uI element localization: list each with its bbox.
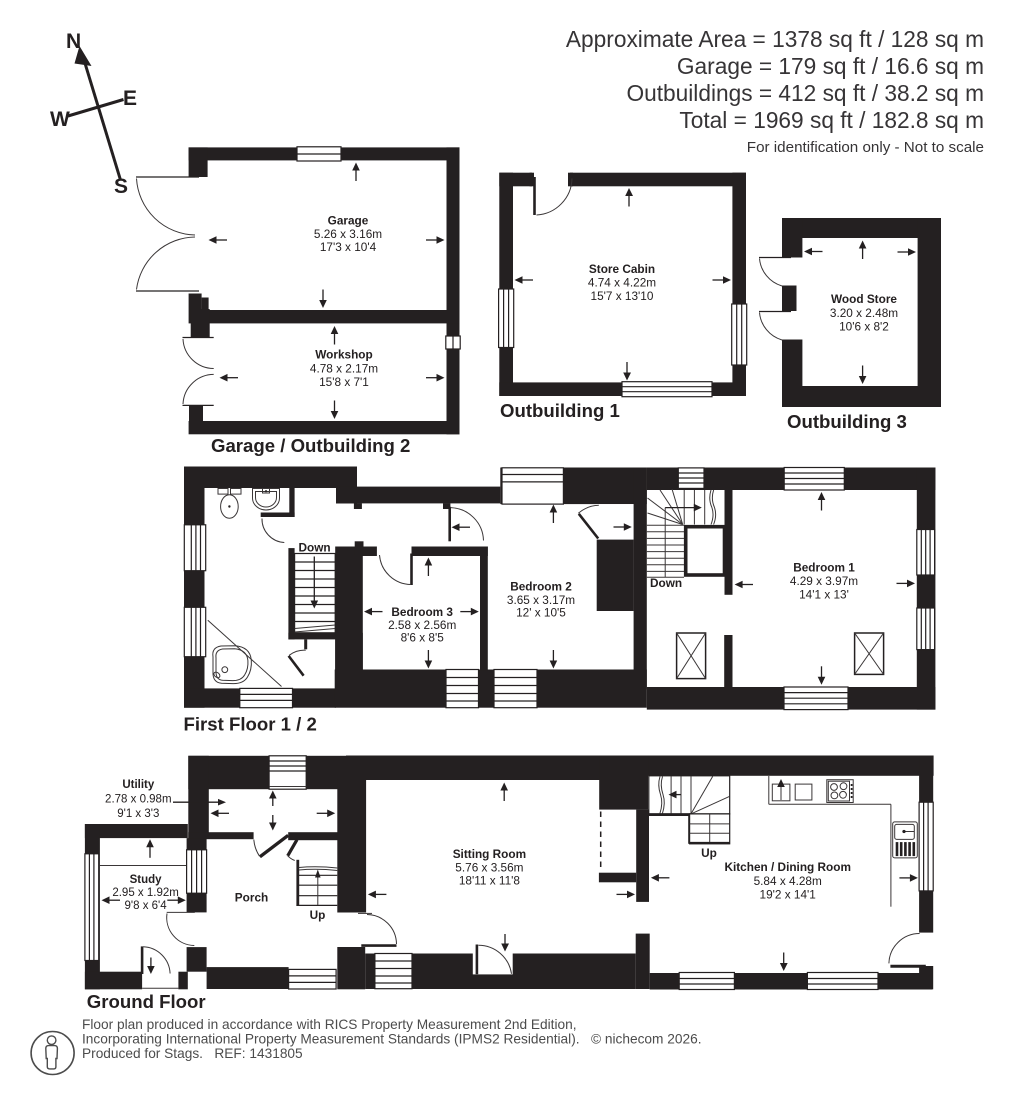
svg-text:Outbuilding 1: Outbuilding 1 xyxy=(500,400,620,421)
svg-text:Up: Up xyxy=(701,846,717,860)
svg-text:Sitting Room: Sitting Room xyxy=(453,847,526,861)
svg-text:4.78 x 2.17m: 4.78 x 2.17m xyxy=(310,362,378,376)
svg-text:2.95 x 1.92m: 2.95 x 1.92m xyxy=(112,887,178,899)
svg-text:Garage = 179 sq ft / 16.6 sq m: Garage = 179 sq ft / 16.6 sq m xyxy=(677,53,984,79)
svg-text:8'6 x 8'5: 8'6 x 8'5 xyxy=(401,631,445,645)
svg-text:3.20 x 2.48m: 3.20 x 2.48m xyxy=(830,306,898,320)
svg-text:W: W xyxy=(50,108,70,131)
svg-text:Outbuildings = 412 sq ft / 38.: Outbuildings = 412 sq ft / 38.2 sq m xyxy=(626,80,984,106)
svg-text:4.74 x 4.22m: 4.74 x 4.22m xyxy=(588,276,656,290)
svg-text:Workshop: Workshop xyxy=(315,348,372,362)
svg-text:Produced for Stags. REF: 143: Produced for Stags. REF: 1431805 xyxy=(82,1046,303,1061)
svg-text:Approximate Area = 1378 sq ft: Approximate Area = 1378 sq ft / 128 sq m xyxy=(566,26,984,52)
svg-text:2.78 x 0.98m: 2.78 x 0.98m xyxy=(105,794,171,806)
svg-text:Porch: Porch xyxy=(235,891,268,905)
svg-text:5.76 x 3.56m: 5.76 x 3.56m xyxy=(455,861,523,875)
svg-text:5.26 x 3.16m: 5.26 x 3.16m xyxy=(314,227,382,241)
svg-text:9'8 x 6'4: 9'8 x 6'4 xyxy=(125,900,168,912)
svg-text:Outbuilding 3: Outbuilding 3 xyxy=(787,411,907,432)
svg-text:Total = 1969 sq ft / 182.8 sq: Total = 1969 sq ft / 182.8 sq m xyxy=(679,107,984,133)
svg-text:Utility: Utility xyxy=(122,779,155,791)
svg-text:First Floor 1 / 2: First Floor 1 / 2 xyxy=(184,714,317,735)
svg-text:15'7 x 13'10: 15'7 x 13'10 xyxy=(591,289,654,303)
svg-text:Ground Floor: Ground Floor xyxy=(87,991,206,1012)
svg-text:Store Cabin: Store Cabin xyxy=(589,262,655,276)
svg-text:Up: Up xyxy=(310,908,326,922)
svg-text:Garage: Garage xyxy=(328,214,369,228)
svg-text:Bedroom 1: Bedroom 1 xyxy=(793,561,855,575)
svg-text:17'3 x 10'4: 17'3 x 10'4 xyxy=(320,240,377,254)
svg-text:10'6 x 8'2: 10'6 x 8'2 xyxy=(839,320,889,334)
svg-text:Garage / Outbuilding 2: Garage / Outbuilding 2 xyxy=(211,435,410,456)
svg-text:Floor plan produced in accorda: Floor plan produced in accordance with R… xyxy=(82,1017,577,1032)
svg-text:For identification only - Not: For identification only - Not to scale xyxy=(747,139,984,156)
svg-text:Kitchen / Dining Room: Kitchen / Dining Room xyxy=(724,860,850,874)
svg-text:Bedroom 3: Bedroom 3 xyxy=(391,605,453,619)
svg-text:Down: Down xyxy=(299,541,331,555)
svg-text:5.84 x 4.28m: 5.84 x 4.28m xyxy=(754,874,822,888)
svg-text:9'1 x 3'3: 9'1 x 3'3 xyxy=(117,808,159,820)
svg-text:4.29 x 3.97m: 4.29 x 3.97m xyxy=(790,574,858,588)
svg-text:Incorporating International Pr: Incorporating International Property Mea… xyxy=(82,1032,702,1047)
svg-text:E: E xyxy=(123,87,137,110)
svg-text:18'11 x 11'8: 18'11 x 11'8 xyxy=(459,874,521,888)
svg-text:19'2 x 14'1: 19'2 x 14'1 xyxy=(760,888,816,902)
svg-text:14'1 x 13': 14'1 x 13' xyxy=(799,588,849,602)
svg-text:Down: Down xyxy=(650,576,682,590)
svg-text:Study: Study xyxy=(130,874,163,886)
svg-text:Bedroom 2: Bedroom 2 xyxy=(510,580,572,594)
svg-text:N: N xyxy=(66,30,81,53)
svg-text:S: S xyxy=(114,175,128,198)
svg-text:15'8 x 7'1: 15'8 x 7'1 xyxy=(319,375,369,389)
svg-text:Wood Store: Wood Store xyxy=(831,292,897,306)
svg-text:12' x 10'5: 12' x 10'5 xyxy=(516,606,566,620)
